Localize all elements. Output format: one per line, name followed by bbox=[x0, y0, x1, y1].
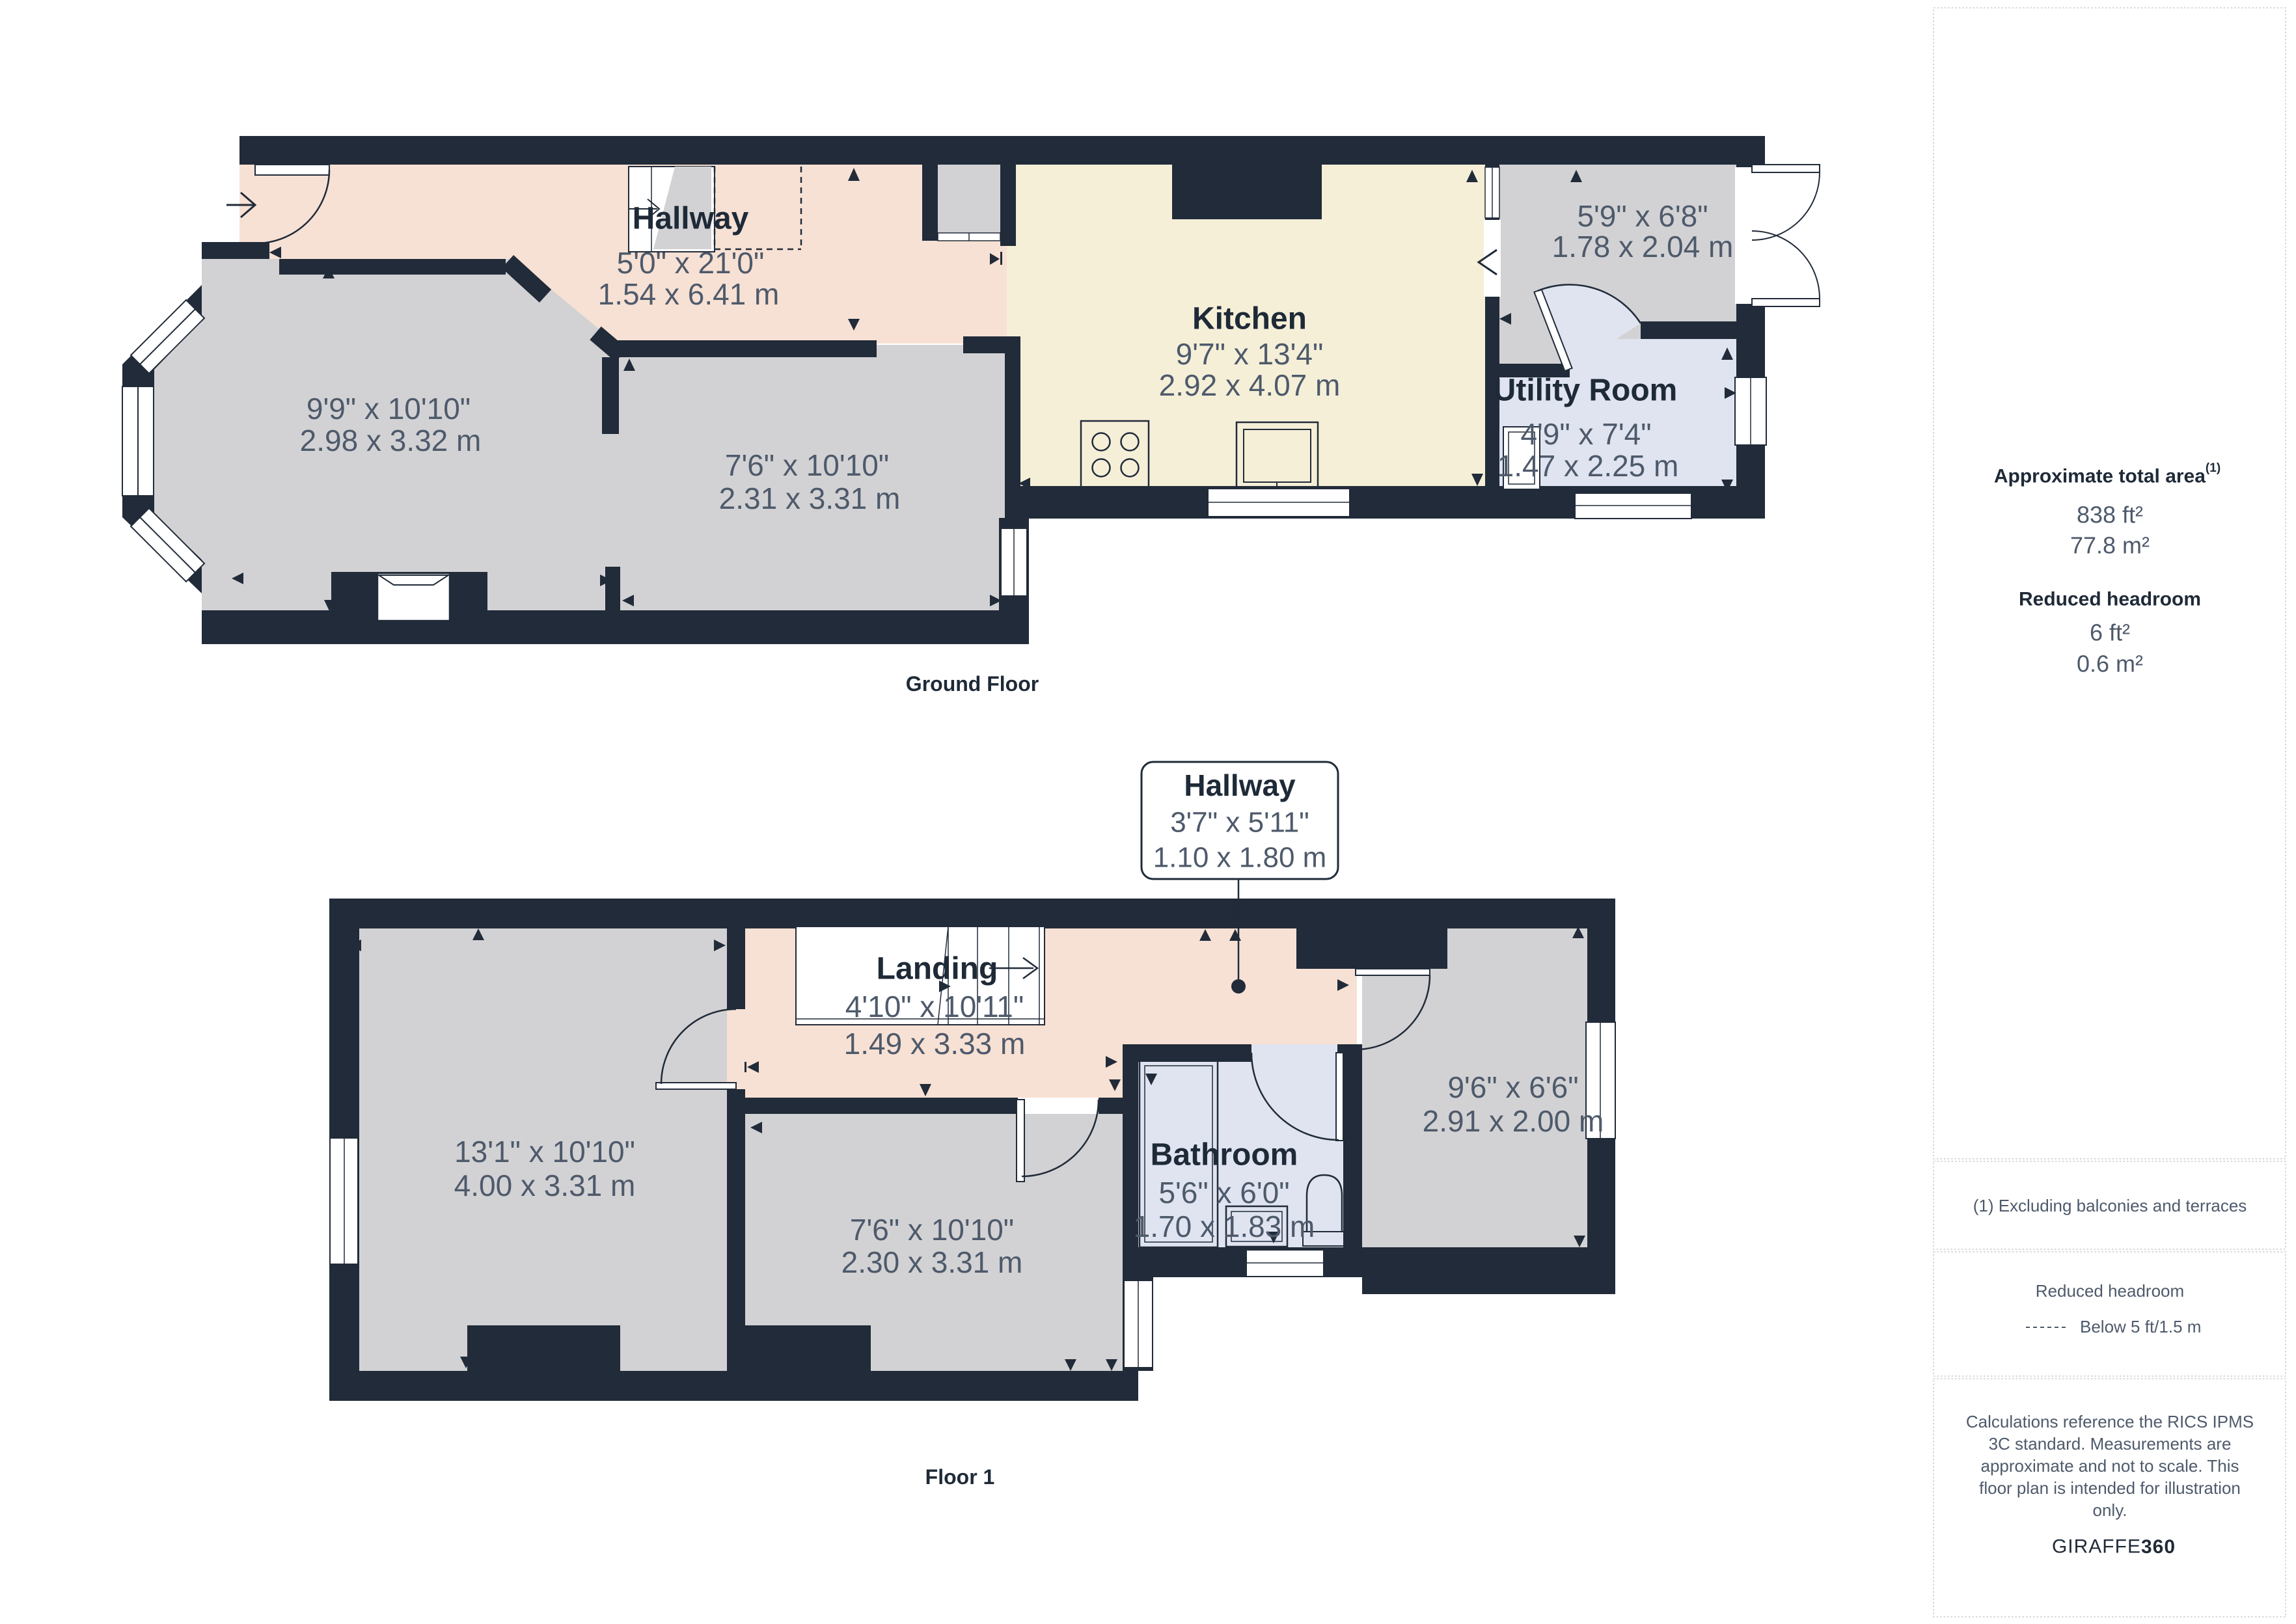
svg-text:approximate and not to scale.: approximate and not to scale. This bbox=[1981, 1456, 2239, 1476]
svg-text:5'0" x 21'0": 5'0" x 21'0" bbox=[617, 246, 765, 280]
svg-text:Reduced headroom: Reduced headroom bbox=[2019, 589, 2201, 610]
svg-text:Ground Floor: Ground Floor bbox=[906, 672, 1039, 696]
svg-text:7'6" x 10'10": 7'6" x 10'10" bbox=[850, 1213, 1014, 1247]
svg-text:1.78 x 2.04 m: 1.78 x 2.04 m bbox=[1552, 230, 1734, 264]
svg-text:1.70 x 1.83 m: 1.70 x 1.83 m bbox=[1134, 1210, 1315, 1243]
svg-text:4.00 x 3.31 m: 4.00 x 3.31 m bbox=[454, 1169, 636, 1202]
svg-text:Kitchen: Kitchen bbox=[1192, 302, 1307, 336]
svg-text:3'7" x 5'11": 3'7" x 5'11" bbox=[1170, 807, 1309, 839]
svg-text:(1) Excluding balconies and te: (1) Excluding balconies and terraces bbox=[1973, 1196, 2247, 1215]
svg-text:4'10" x 10'11": 4'10" x 10'11" bbox=[845, 990, 1024, 1023]
svg-text:9'7" x 13'4": 9'7" x 13'4" bbox=[1176, 337, 1324, 371]
svg-text:2.92 x 4.07 m: 2.92 x 4.07 m bbox=[1159, 368, 1341, 402]
svg-text:Reduced headroom: Reduced headroom bbox=[2036, 1281, 2184, 1301]
svg-text:838 ft²: 838 ft² bbox=[2077, 502, 2143, 528]
svg-text:2.30 x 3.31 m: 2.30 x 3.31 m bbox=[841, 1245, 1023, 1279]
svg-text:9'6" x 6'6": 9'6" x 6'6" bbox=[1447, 1070, 1578, 1104]
svg-text:Floor 1: Floor 1 bbox=[925, 1465, 995, 1489]
svg-text:5'9" x 6'8": 5'9" x 6'8" bbox=[1577, 199, 1708, 233]
svg-text:2.98 x 3.32 m: 2.98 x 3.32 m bbox=[300, 424, 482, 457]
svg-text:Below 5 ft/1.5 m: Below 5 ft/1.5 m bbox=[2080, 1317, 2201, 1336]
svg-text:13'1" x 10'10": 13'1" x 10'10" bbox=[454, 1135, 635, 1169]
svg-text:5'6" x 6'0": 5'6" x 6'0" bbox=[1158, 1176, 1289, 1210]
svg-text:1.54 x 6.41 m: 1.54 x 6.41 m bbox=[598, 277, 780, 311]
svg-text:1.49 x 3.33 m: 1.49 x 3.33 m bbox=[844, 1027, 1026, 1061]
svg-text:77.8 m²: 77.8 m² bbox=[2070, 532, 2150, 559]
svg-text:3C standard. Measurements are: 3C standard. Measurements are bbox=[1989, 1434, 2232, 1454]
svg-text:only.: only. bbox=[2093, 1500, 2127, 1520]
svg-text:6 ft²: 6 ft² bbox=[2090, 619, 2130, 646]
svg-text:floor plan is intended for ill: floor plan is intended for illustration bbox=[1979, 1478, 2241, 1498]
svg-text:1.10 x 1.80 m: 1.10 x 1.80 m bbox=[1153, 842, 1327, 874]
svg-text:Calculations reference the RIC: Calculations reference the RICS IPMS bbox=[1966, 1412, 2254, 1431]
svg-text:Bathroom: Bathroom bbox=[1151, 1138, 1298, 1172]
svg-text:2.91 x 2.00 m: 2.91 x 2.00 m bbox=[1423, 1104, 1604, 1138]
svg-text:2.31 x 3.31 m: 2.31 x 3.31 m bbox=[719, 481, 901, 515]
svg-text:0.6 m²: 0.6 m² bbox=[2077, 651, 2143, 677]
svg-text:Utility Room: Utility Room bbox=[1494, 373, 1678, 408]
svg-text:Hallway: Hallway bbox=[1184, 768, 1296, 802]
svg-text:Landing: Landing bbox=[877, 952, 998, 986]
svg-text:7'6" x 10'10": 7'6" x 10'10" bbox=[725, 448, 889, 482]
svg-text:9'9" x 10'10": 9'9" x 10'10" bbox=[307, 392, 471, 426]
svg-text:GIRAFFE360: GIRAFFE360 bbox=[2052, 1536, 2176, 1558]
svg-text:1.47 x 2.25 m: 1.47 x 2.25 m bbox=[1497, 449, 1679, 483]
svg-text:Hallway: Hallway bbox=[633, 202, 749, 236]
svg-text:4'9" x 7'4": 4'9" x 7'4" bbox=[1520, 417, 1651, 451]
